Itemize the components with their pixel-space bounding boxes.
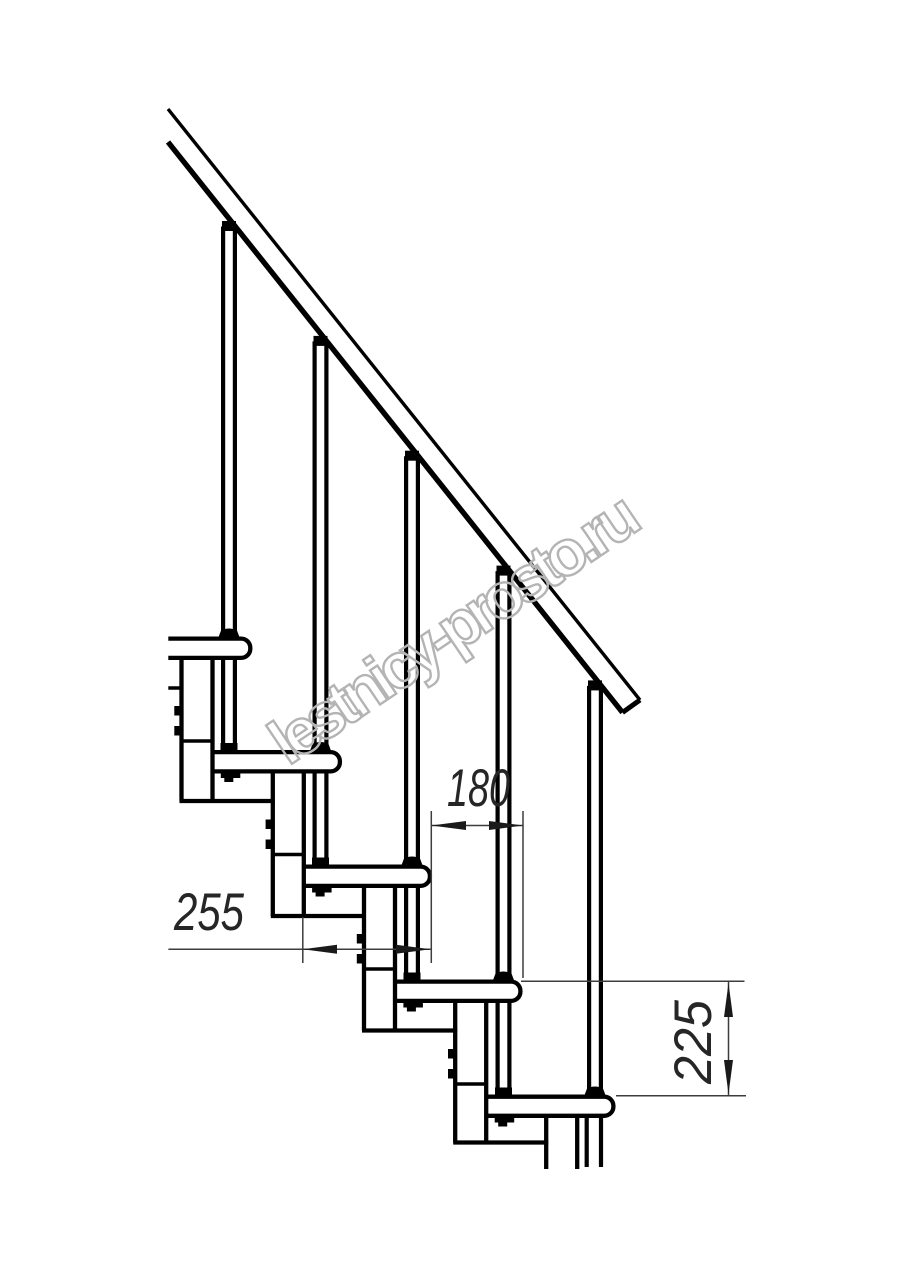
- svg-text:225: 225: [664, 1000, 723, 1085]
- svg-text:255: 255: [173, 883, 244, 942]
- svg-text:180: 180: [447, 759, 510, 818]
